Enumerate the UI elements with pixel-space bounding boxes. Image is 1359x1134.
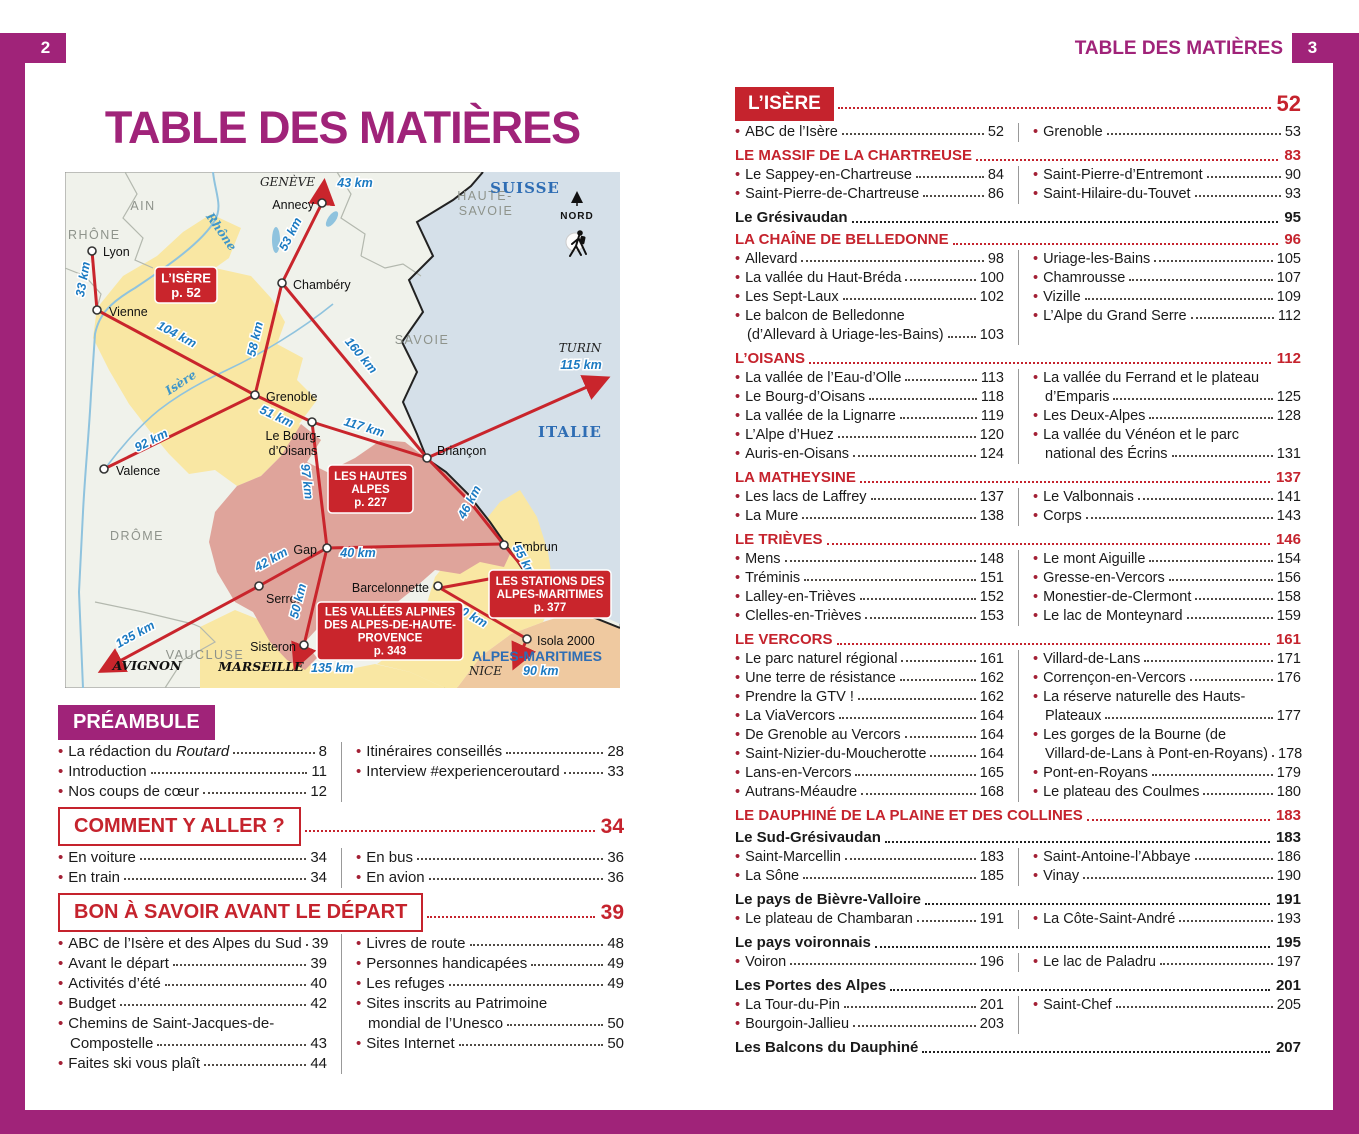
section-heading: Le pays de Bièvre-Valloire191	[735, 891, 1301, 908]
entry-line: •Saint-Pierre-d’Entremont90	[1033, 166, 1301, 185]
city-label: Le Bourg-	[266, 429, 321, 443]
toc-entry: •Avant le départ39	[58, 954, 327, 974]
entry-label: (d’Allevard à Uriage-les-Bains)	[747, 326, 944, 345]
entry-bullet: •	[1033, 688, 1038, 707]
entry-bullet: •	[58, 868, 63, 888]
dot-leader	[1191, 185, 1285, 200]
entry-page: 148	[980, 550, 1004, 569]
city-label: Valence	[116, 464, 160, 478]
toc-entry: •Le parc naturel régional161	[735, 650, 1004, 669]
dot-leader	[199, 782, 310, 797]
section-title: L’OISANS	[735, 350, 805, 367]
entry-bullet: •	[58, 742, 63, 762]
toc-section: Le pays de Bièvre-Valloire191•Le plateau…	[735, 891, 1301, 929]
dot-leader	[147, 762, 312, 777]
city-dot	[308, 418, 316, 426]
section-title: Le Sud-Grésivaudan	[735, 829, 881, 846]
entry-line: Villard-de-Lans à Pont-en-Royans)178	[1033, 745, 1301, 764]
entry-label: Saint-Marcellin	[745, 848, 841, 867]
entry-page: 100	[980, 269, 1004, 288]
map-label: AVIGNON	[112, 658, 182, 673]
section-heading: Les Balcons du Dauphiné207	[735, 1039, 1301, 1056]
section-title: LE MASSIF DE LA CHARTREUSE	[735, 147, 972, 164]
entry-page: 164	[980, 726, 1004, 745]
dot-leader	[834, 426, 980, 441]
entry-bullet: •	[356, 954, 361, 974]
dot-leader	[897, 650, 979, 665]
entry-label: De Grenoble au Vercors	[745, 726, 901, 745]
toc-entry: •Corrençon-en-Vercors176	[1033, 669, 1301, 688]
toc-section: LE DAUPHINÉ DE LA PLAINE ET DES COLLINES…	[735, 807, 1301, 824]
city-dot	[434, 582, 442, 590]
entry-page: 107	[1277, 269, 1301, 288]
dot-leader	[200, 1054, 310, 1069]
entry-page: 98	[988, 250, 1004, 269]
entry-label: ABC de l’Isère	[745, 123, 838, 142]
dot-leader	[834, 96, 1275, 112]
entry-label: En avion	[366, 868, 424, 888]
entry-page: 162	[980, 688, 1004, 707]
toc-entry: •L’Alpe du Grand Serre112	[1033, 307, 1301, 326]
toc-entry: •Clelles-en-Trièves153	[735, 607, 1004, 626]
city-label: Sisteron	[250, 640, 296, 654]
entry-label: En bus	[366, 848, 413, 868]
entry-page: 49	[607, 974, 624, 994]
entry-line: •Les Deux-Alpes128	[1033, 407, 1301, 426]
toc-entry: •Activités d’été40	[58, 974, 327, 994]
entry-page: 154	[1277, 550, 1301, 569]
map-label: RHÔNE	[68, 227, 121, 242]
entry-label: Uriage-les-Bains	[1043, 250, 1150, 269]
city-dot	[88, 247, 96, 255]
entry-line: •Bourgoin-Jallieu203	[735, 1015, 1004, 1034]
entry-column-left: •Saint-Marcellin183•La Sône185	[735, 848, 1018, 886]
dot-leader	[913, 910, 980, 925]
section-title: COMMENT Y ALLER ?	[58, 807, 301, 846]
dot-leader	[1103, 123, 1285, 138]
dot-leader	[901, 369, 980, 384]
section-heading: LE VERCORS161	[735, 631, 1301, 648]
entry-bullet: •	[735, 867, 740, 886]
entry-line: •La Tour-du-Pin201	[735, 996, 1004, 1015]
dot-leader	[169, 954, 310, 969]
section-page: 183	[1276, 829, 1301, 846]
dot-leader	[856, 588, 980, 603]
dot-leader	[901, 726, 980, 741]
entry-column-left: •La rédaction du Routard8•Introduction11…	[58, 742, 341, 802]
dot-leader	[886, 978, 1274, 994]
entry-label: Activités d’été	[68, 974, 161, 994]
entry-line: •Les refuges49	[356, 974, 624, 994]
dot-leader	[301, 819, 599, 835]
map-label: TURIN	[559, 341, 602, 355]
entry-bullet: •	[1033, 369, 1038, 388]
entry-line: •Mens148	[735, 550, 1004, 569]
section-page: 201	[1276, 977, 1301, 994]
entry-label: Le Bourg-d’Oisans	[745, 388, 865, 407]
dot-leader	[835, 707, 980, 722]
entry-column-right: •Villard-de-Lans171•Corrençon-en-Vercors…	[1018, 650, 1301, 802]
entry-bullet: •	[1033, 550, 1038, 569]
entry-label: La vallée de l’Eau-d’Olle	[745, 369, 901, 388]
section-heading: LA CHAÎNE DE BELLEDONNE96	[735, 231, 1301, 248]
entry-line: •Grenoble53	[1033, 123, 1301, 142]
section-page: 112	[1277, 350, 1301, 367]
entry-bullet: •	[356, 934, 361, 954]
dot-leader	[1168, 445, 1277, 460]
entry-label: Interview #experienceroutard	[366, 762, 559, 782]
entry-bullet: •	[1033, 250, 1038, 269]
toc-entry: •En avion36	[356, 868, 624, 888]
entry-page: 42	[310, 994, 327, 1014]
entry-bullet: •	[1033, 867, 1038, 886]
section-page: 191	[1276, 891, 1301, 908]
dot-leader	[901, 269, 979, 284]
entry-label: ABC de l’Isère et des Alpes du Sud	[68, 934, 301, 954]
toc-entry: •De Grenoble au Vercors164	[735, 726, 1004, 745]
dot-leader	[849, 1015, 980, 1030]
entry-line: •La vallée du Ferrand et le plateau	[1033, 369, 1301, 388]
entry-bullet: •	[735, 1015, 740, 1034]
page-number-left: 2	[25, 33, 66, 63]
toc-entry: •La Mure138	[735, 507, 1004, 526]
entry-column-right: •Saint-Pierre-d’Entremont90•Saint-Hilair…	[1018, 166, 1301, 204]
book-spread: 2 3 TABLE DES MATIÈRES TABLE DES MATIÈRE…	[0, 0, 1359, 1134]
entry-line: •Budget42	[58, 994, 327, 1014]
dot-leader	[856, 470, 1274, 486]
toc-entry: •La rédaction du Routard8	[58, 742, 327, 762]
dot-leader	[503, 1014, 607, 1029]
toc-entry: •La vallée de l’Eau-d’Olle113	[735, 369, 1004, 388]
entry-line: •En train34	[58, 868, 327, 888]
chapter-box-label: p. 52	[171, 285, 201, 300]
entry-bullet: •	[1033, 588, 1038, 607]
entry-line: •La ViaVercors164	[735, 707, 1004, 726]
entry-line: •Lalley-en-Trièves152	[735, 588, 1004, 607]
toc-entry: •ABC de l’Isère et des Alpes du Sud39	[58, 934, 327, 954]
entry-line: •Saint-Nizier-du-Moucherotte164	[735, 745, 1004, 764]
entry-bullet: •	[1033, 269, 1038, 288]
entry-bullet: •	[735, 550, 740, 569]
dot-leader	[848, 210, 1283, 226]
dot-leader	[833, 632, 1274, 648]
toc-entry: •La réserve naturelle des Hauts-Plateaux…	[1033, 688, 1301, 726]
dot-leader	[527, 954, 607, 969]
dot-leader	[116, 994, 311, 1009]
entry-bullet: •	[356, 762, 361, 782]
entry-bullet: •	[1033, 764, 1038, 783]
entry-columns: •Le parc naturel régional161•Une terre d…	[735, 650, 1301, 802]
entry-label: La vallée du Haut-Bréda	[745, 269, 901, 288]
entry-column-right: •Le mont Aiguille154•Gresse-en-Vercors15…	[1018, 550, 1301, 626]
toc-entry: •Chemins de Saint-Jacques-de-Compostelle…	[58, 1014, 327, 1054]
entry-columns: •La vallée de l’Eau-d’Olle113•Le Bourg-d…	[735, 369, 1301, 464]
entry-line: •La vallée de la Lignarre119	[735, 407, 1004, 426]
toc-entry: •Les gorges de la Bourne (deVillard-de-L…	[1033, 726, 1301, 764]
toc-entry: •Le balcon de Belledonne(d’Allevard à Ur…	[735, 307, 1004, 345]
entry-page: 128	[1277, 407, 1301, 426]
entry-label: Le lac de Monteynard	[1043, 607, 1182, 626]
entry-columns: •Le Sappey-en-Chartreuse84•Saint-Pierre-…	[735, 166, 1301, 204]
entry-label: Voiron	[745, 953, 786, 972]
entry-line: •Le Sappey-en-Chartreuse84	[735, 166, 1004, 185]
city-dot	[93, 306, 101, 314]
entry-page: 168	[980, 783, 1004, 802]
entry-bullet: •	[735, 688, 740, 707]
toc-entry: •Gresse-en-Vercors156	[1033, 569, 1301, 588]
entry-bullet: •	[1033, 166, 1038, 185]
toc-entry: •Les Sept-Laux102	[735, 288, 1004, 307]
section-heading: Le Grésivaudan95	[735, 209, 1301, 226]
section-title: LA MATHEYSINE	[735, 469, 856, 486]
dot-leader	[425, 868, 608, 883]
toc-section: LE VERCORS161•Le parc naturel régional16…	[735, 631, 1301, 802]
entry-bullet: •	[1033, 185, 1038, 204]
section-page: 207	[1276, 1039, 1301, 1056]
entry-columns: •ABC de l’Isère52•Grenoble53	[735, 123, 1301, 142]
entry-column-left: •Voiron196	[735, 953, 1018, 972]
entry-bullet: •	[356, 994, 361, 1014]
entry-bullet: •	[356, 848, 361, 868]
entry-bullet: •	[1033, 650, 1038, 669]
city-label: Chambéry	[293, 278, 351, 292]
entry-label: Auris-en-Oisans	[745, 445, 849, 464]
dot-leader	[851, 764, 979, 779]
city-dot	[500, 541, 508, 549]
entry-page: 39	[310, 954, 327, 974]
entry-bullet: •	[58, 994, 63, 1014]
entry-columns: •Saint-Marcellin183•La Sône185•Saint-Ant…	[735, 848, 1301, 886]
entry-label: Saint-Nizier-du-Moucherotte	[745, 745, 926, 764]
entry-bullet: •	[735, 707, 740, 726]
entry-label: La vallée du Ferrand et le plateau	[1043, 369, 1259, 388]
dot-leader	[1112, 996, 1277, 1011]
city-dot	[255, 582, 263, 590]
entry-label: Faites ski vous plaît	[68, 1054, 200, 1074]
entry-label: La Sône	[745, 867, 799, 886]
section-heading: Les Portes des Alpes201	[735, 977, 1301, 994]
entry-bullet: •	[735, 607, 740, 626]
map-label: 115 km	[560, 358, 601, 372]
entry-columns: •Mens148•Tréminis151•Lalley-en-Trièves15…	[735, 550, 1301, 626]
entry-line: •Sites Internet50	[356, 1034, 624, 1054]
toc-entry: •Pont-en-Royans179	[1033, 764, 1301, 783]
dot-leader	[871, 935, 1274, 951]
toc-section: LE TRIÈVES146•Mens148•Tréminis151•Lalley…	[735, 531, 1301, 626]
dot-leader	[865, 388, 981, 403]
toc-entry: •En bus36	[356, 848, 624, 868]
entry-line: •Gresse-en-Vercors156	[1033, 569, 1301, 588]
entry-line: •Livres de route48	[356, 934, 624, 954]
entry-page: 178	[1278, 745, 1302, 764]
entry-label: Le mont Aiguille	[1043, 550, 1145, 569]
dot-leader	[161, 974, 311, 989]
entry-label: La vallée du Vénéon et le parc	[1043, 426, 1239, 445]
chapter-box-label: p. 343	[374, 646, 407, 658]
entry-bullet: •	[735, 388, 740, 407]
chapter-box-label: p. 377	[534, 602, 567, 614]
toc-entry: •Les Deux-Alpes128	[1033, 407, 1301, 426]
section-page: 34	[601, 815, 624, 839]
toc-entry: •Le lac de Monteynard159	[1033, 607, 1301, 626]
entry-page: 185	[980, 867, 1004, 886]
entry-page: 179	[1277, 764, 1301, 783]
entry-line: •Saint-Chef205	[1033, 996, 1301, 1015]
toc-entry: •Vinay190	[1033, 867, 1301, 886]
map-label: GENÈVE	[260, 174, 315, 189]
dot-leader	[1199, 783, 1276, 798]
entry-line: •Chamrousse107	[1033, 269, 1301, 288]
toc-section: L’ISÈRE52•ABC de l’Isère52•Grenoble53	[735, 87, 1301, 142]
toc-entry: •La Tour-du-Pin201	[735, 996, 1004, 1015]
map-label: ITALIE	[538, 423, 602, 441]
toc-entry: •Lalley-en-Trièves152	[735, 588, 1004, 607]
entry-line: •Villard-de-Lans171	[1033, 650, 1301, 669]
map-label: 135 km	[311, 661, 353, 675]
toc-entry: •Itinéraires conseillés28	[356, 742, 624, 762]
dot-leader	[136, 848, 311, 863]
entry-column-left: •En voiture34•En train34	[58, 848, 341, 888]
entry-page: 165	[980, 764, 1004, 783]
entry-bullet: •	[1033, 123, 1038, 142]
entry-page: 86	[988, 185, 1004, 204]
entry-bullet: •	[58, 782, 63, 802]
dot-leader	[1268, 745, 1278, 760]
entry-page: 36	[607, 868, 624, 888]
entry-label: Lalley-en-Trièves	[745, 588, 856, 607]
toc-entry: •Faites ski vous plaît44	[58, 1054, 327, 1074]
entry-page: 197	[1277, 953, 1301, 972]
chapter-box-label: L’ISÈRE	[161, 271, 211, 286]
entry-bullet: •	[1033, 288, 1038, 307]
section-title: Le Grésivaudan	[735, 209, 848, 226]
entry-line: •Saint-Antoine-l’Abbaye186	[1033, 848, 1301, 867]
toc-right-page: L’ISÈRE52•ABC de l’Isère52•Grenoble53LE …	[735, 82, 1301, 1058]
entry-line: •Vizille109	[1033, 288, 1301, 307]
entry-bullet: •	[735, 488, 740, 507]
entry-label: Les Sept-Laux	[745, 288, 839, 307]
toc-entry: •Mens148	[735, 550, 1004, 569]
entry-columns: •En voiture34•En train34•En bus36•En avi…	[58, 848, 624, 888]
entry-line: •Chemins de Saint-Jacques-de-	[58, 1014, 327, 1034]
entry-line: •La vallée de l’Eau-d’Olle113	[735, 369, 1004, 388]
entry-label: Les gorges de la Bourne (de	[1043, 726, 1226, 745]
city-label: Grenoble	[266, 390, 317, 404]
dot-leader	[1203, 166, 1285, 181]
entry-bullet: •	[356, 868, 361, 888]
entry-label: La Tour-du-Pin	[745, 996, 840, 1015]
entry-page: 119	[981, 407, 1004, 426]
toc-entry: •La vallée de la Lignarre119	[735, 407, 1004, 426]
entry-line: •Autrans-Méaudre168	[735, 783, 1004, 802]
toc-entry: •Le Valbonnais141	[1033, 488, 1301, 507]
entry-line: •Les gorges de la Bourne (de	[1033, 726, 1301, 745]
entry-page: 153	[980, 607, 1004, 626]
city-dot	[523, 635, 531, 643]
dot-leader	[423, 905, 598, 921]
entry-page: 11	[311, 762, 327, 782]
entry-page: 118	[981, 388, 1004, 407]
entry-label: Bourgoin-Jallieu	[745, 1015, 849, 1034]
dot-leader	[560, 762, 608, 777]
entry-line: •La vallée du Vénéon et le parc	[1033, 426, 1301, 445]
entry-bullet: •	[58, 1014, 63, 1034]
entry-label: mondial de l’Unesco	[368, 1014, 503, 1034]
entry-bullet: •	[1033, 726, 1038, 745]
toc-entry: •Le Bourg-d’Oisans118	[735, 388, 1004, 407]
entry-page: 186	[1277, 848, 1301, 867]
entry-label: Personnes handicapées	[366, 954, 527, 974]
entry-bullet: •	[735, 726, 740, 745]
toc-section: Le pays voironnais195•Voiron196•Le lac d…	[735, 934, 1301, 972]
entry-page: 156	[1277, 569, 1301, 588]
toc-entry: •Vizille109	[1033, 288, 1301, 307]
entry-label: Villard-de-Lans à Pont-en-Royans)	[1045, 745, 1268, 764]
entry-label: La Mure	[745, 507, 798, 526]
entry-label: Saint-Chef	[1043, 996, 1112, 1015]
entry-bullet: •	[1033, 783, 1038, 802]
entry-line: •Les lacs de Laffrey137	[735, 488, 1004, 507]
entry-columns: •Les lacs de Laffrey137•La Mure138•Le Va…	[735, 488, 1301, 526]
dot-leader	[1156, 953, 1277, 968]
entry-label: Le Valbonnais	[1043, 488, 1134, 507]
section-heading: PRÉAMBULE	[58, 705, 624, 740]
chapter-box-label: ALPES-MARITIMES	[497, 589, 604, 601]
entry-label: Introduction	[68, 762, 146, 782]
entry-page: 164	[980, 745, 1004, 764]
entry-bullet: •	[1033, 996, 1038, 1015]
entry-label: Budget	[68, 994, 116, 1014]
entry-page: 203	[980, 1015, 1004, 1034]
entry-column-left: •ABC de l’Isère et des Alpes du Sud39•Av…	[58, 934, 341, 1074]
toc-entry: •Sites Internet50	[356, 1034, 624, 1054]
entry-page: 193	[1277, 910, 1301, 929]
entry-columns: •Le plateau de Chambaran191•La Côte-Sain…	[735, 910, 1301, 929]
entry-line: •En bus36	[356, 848, 624, 868]
entry-bullet: •	[735, 953, 740, 972]
entry-label: Lans-en-Vercors	[745, 764, 851, 783]
city-label: Gap	[293, 543, 317, 557]
entry-label: Corps	[1043, 507, 1082, 526]
toc-entry: •En voiture34	[58, 848, 327, 868]
entry-bullet: •	[1033, 910, 1038, 929]
entry-columns: •Allevard98•La vallée du Haut-Bréda100•L…	[735, 250, 1301, 345]
toc-entry: •Villard-de-Lans171	[1033, 650, 1301, 669]
section-page: 183	[1276, 807, 1301, 824]
entry-label: Compostelle	[70, 1034, 153, 1054]
entry-label: Prendre la GTV !	[745, 688, 854, 707]
section-title: LE TRIÈVES	[735, 531, 823, 548]
entry-label: Chemins de Saint-Jacques-de-	[68, 1014, 274, 1034]
entry-line: •ABC de l’Isère et des Alpes du Sud39	[58, 934, 327, 954]
chapter-box-label: LES VALLÉES ALPINES	[325, 606, 456, 619]
toc-section: Le Grésivaudan95	[735, 209, 1301, 226]
entry-line: •Corps143	[1033, 507, 1301, 526]
toc-entry: •Le plateau des Coulmes180	[1033, 783, 1301, 802]
entry-bullet: •	[735, 848, 740, 867]
section-heading: LA MATHEYSINE137	[735, 469, 1301, 486]
dot-leader	[1101, 707, 1276, 722]
entry-label: Saint-Pierre-de-Chartreuse	[745, 185, 919, 204]
entry-page: 50	[607, 1014, 624, 1034]
entry-bullet: •	[735, 369, 740, 388]
dot-leader	[896, 669, 980, 684]
entry-column-left: •Le Sappey-en-Chartreuse84•Saint-Pierre-…	[735, 166, 1018, 204]
map-label: SUISSE	[490, 179, 560, 197]
toc-entry: •Lans-en-Vercors165	[735, 764, 1004, 783]
entry-bullet: •	[1033, 407, 1038, 426]
entry-page: 138	[980, 507, 1004, 526]
